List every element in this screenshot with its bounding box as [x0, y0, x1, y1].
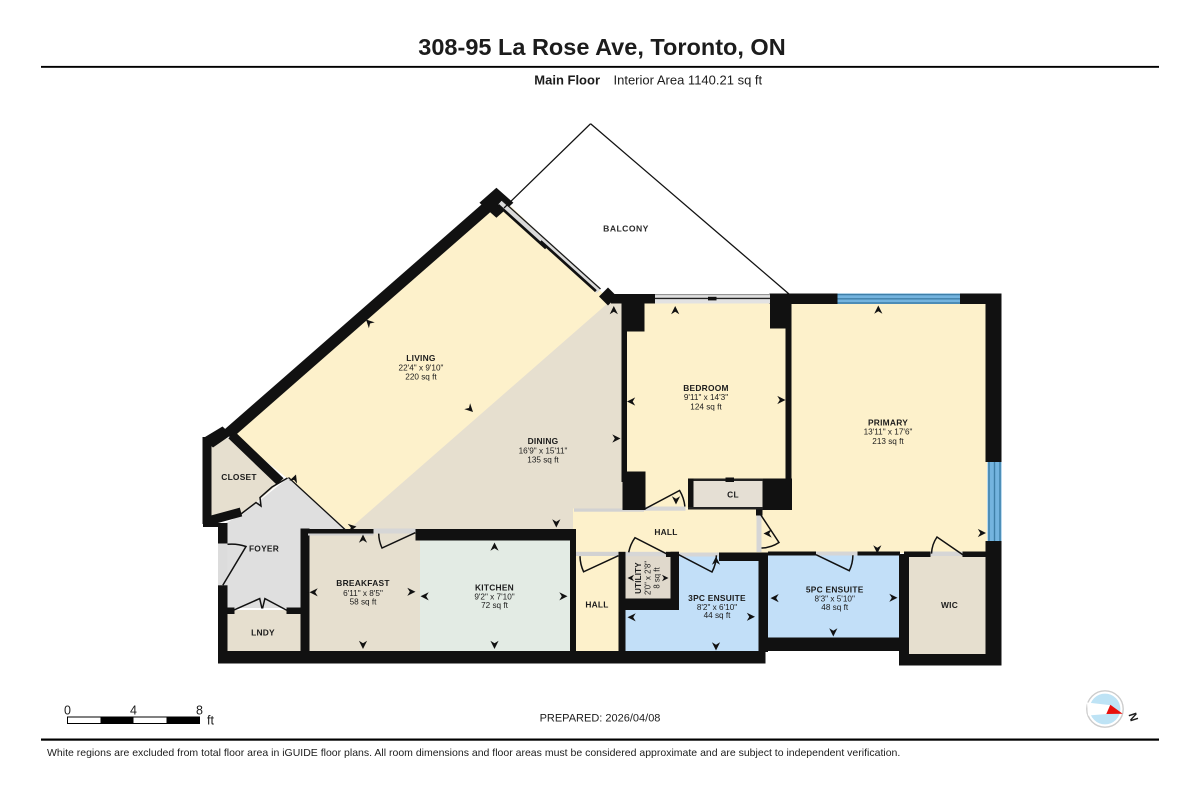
- svg-text:Main Floor: Main Floor: [534, 73, 600, 88]
- svg-text:2'0" x 2'8": 2'0" x 2'8": [644, 561, 653, 595]
- svg-text:72 sq ft: 72 sq ft: [481, 601, 509, 610]
- svg-text:9'2" x 7'10": 9'2" x 7'10": [474, 592, 514, 601]
- svg-text:13'11" x 17'6": 13'11" x 17'6": [864, 428, 913, 437]
- svg-text:4: 4: [130, 704, 137, 718]
- svg-text:LNDY: LNDY: [251, 628, 275, 638]
- svg-text:PREPARED: 2026/04/08: PREPARED: 2026/04/08: [540, 712, 661, 724]
- svg-text:9'11" x 14'3": 9'11" x 14'3": [684, 393, 728, 402]
- svg-text:ft: ft: [207, 714, 214, 728]
- svg-text:5PC ENSUITE: 5PC ENSUITE: [806, 585, 864, 595]
- svg-text:58 sq ft: 58 sq ft: [350, 597, 378, 606]
- svg-text:124 sq ft: 124 sq ft: [690, 402, 722, 411]
- svg-text:22'4" x 9'10": 22'4" x 9'10": [399, 363, 444, 372]
- svg-text:3PC ENSUITE: 3PC ENSUITE: [688, 593, 746, 603]
- svg-text:White regions are excluded fro: White regions are excluded from total fl…: [47, 747, 900, 759]
- svg-text:135 sq ft: 135 sq ft: [527, 456, 559, 465]
- svg-text:HALL: HALL: [654, 527, 677, 537]
- svg-text:HALL: HALL: [585, 599, 608, 609]
- svg-text:308-95 La Rose Ave, Toronto, O: 308-95 La Rose Ave, Toronto, ON: [418, 34, 785, 60]
- svg-text:Interior Area 1140.21 sq ft: Interior Area 1140.21 sq ft: [614, 73, 763, 88]
- svg-text:44 sq ft: 44 sq ft: [704, 611, 732, 620]
- svg-text:BEDROOM: BEDROOM: [683, 383, 729, 393]
- svg-text:48 sq ft: 48 sq ft: [821, 603, 849, 612]
- svg-text:213 sq ft: 213 sq ft: [872, 437, 904, 446]
- svg-text:KITCHEN: KITCHEN: [475, 583, 514, 593]
- svg-text:CL: CL: [727, 489, 739, 499]
- svg-text:16'9" x 15'11": 16'9" x 15'11": [519, 446, 568, 455]
- svg-text:BALCONY: BALCONY: [603, 224, 649, 234]
- svg-text:PRIMARY: PRIMARY: [868, 417, 908, 427]
- svg-text:UTILITY: UTILITY: [634, 562, 643, 594]
- svg-text:CLOSET: CLOSET: [221, 472, 257, 482]
- svg-text:DINING: DINING: [528, 436, 559, 446]
- svg-text:8 sq ft: 8 sq ft: [653, 567, 662, 589]
- svg-text:LIVING: LIVING: [406, 353, 435, 363]
- svg-text:0: 0: [64, 704, 71, 718]
- svg-text:WIC: WIC: [941, 600, 958, 610]
- svg-text:220 sq ft: 220 sq ft: [405, 372, 437, 381]
- svg-text:BREAKFAST: BREAKFAST: [336, 578, 390, 588]
- svg-text:8: 8: [196, 704, 203, 718]
- svg-text:FOYER: FOYER: [249, 543, 279, 553]
